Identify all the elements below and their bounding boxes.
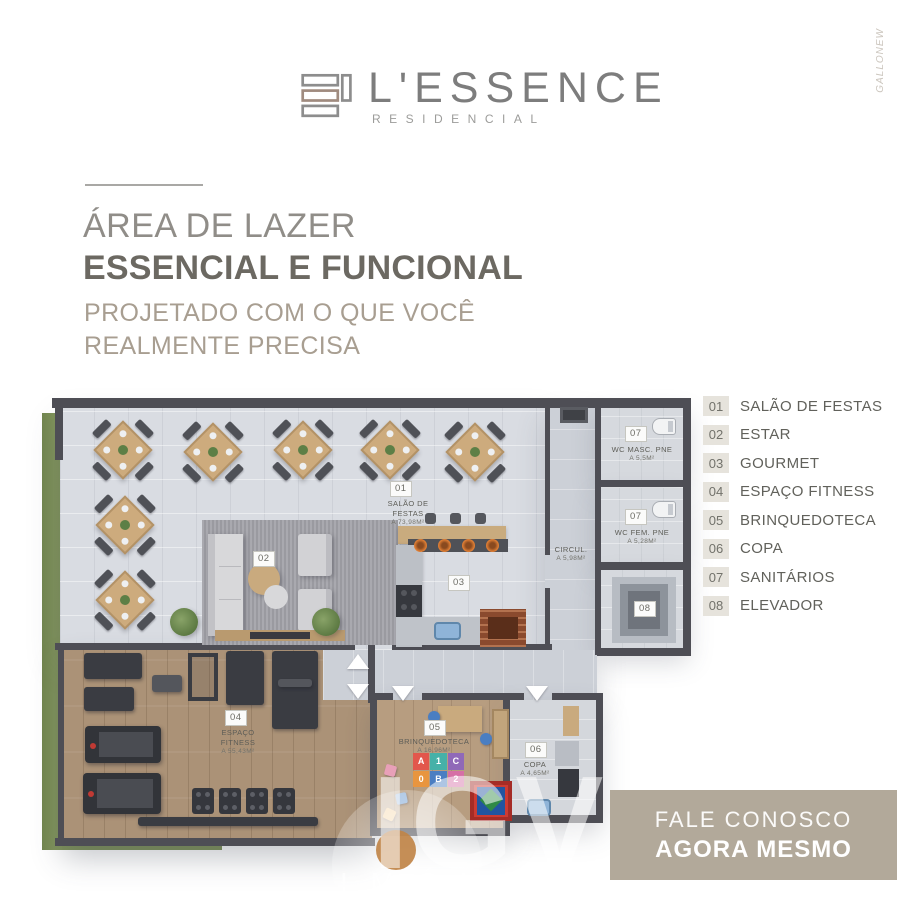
legend: 01 SALÃO DE FESTAS 02 ESTAR 03 GOURMET 0… [703, 396, 882, 616]
legend-label: ESPAÇO FITNESS [740, 483, 875, 500]
side-table [264, 585, 288, 609]
room-badge-fitness: 04 [225, 710, 247, 726]
food-plate [414, 539, 427, 552]
food-plate [486, 539, 499, 552]
legend-label: BRINQUEDOTECA [740, 512, 876, 529]
legend-label: GOURMET [740, 455, 819, 472]
room-badge-brinquedoteca: 05 [424, 720, 446, 736]
legend-num: 02 [703, 425, 729, 445]
treadmill [85, 726, 161, 763]
brand-logo-icon [300, 70, 354, 122]
food-plate [438, 539, 451, 552]
flow-arrow-down [347, 684, 369, 699]
toilet [652, 418, 676, 435]
legend-num: 01 [703, 396, 729, 416]
room-wc-masc [597, 405, 688, 483]
room-badge-wc-masc: 07 [625, 426, 647, 442]
brand-subtitle: RESIDENCIAL [368, 112, 669, 126]
legend-item-gourmet: 03 GOURMET [703, 453, 882, 473]
copa-cabinet [563, 706, 579, 736]
room-badge-estar: 02 [253, 551, 275, 567]
multi-gym-station [272, 651, 318, 729]
legend-label: ESTAR [740, 426, 791, 443]
headline-line2: ESSENCIAL E FUNCIONAL [83, 249, 523, 288]
dumbbell-rack [219, 788, 241, 814]
legend-item-elevador: 08 ELEVADOR [703, 596, 882, 616]
gym-machine [84, 687, 134, 711]
dumbbell-rack [273, 788, 295, 814]
plant [170, 608, 198, 636]
legend-label: ELEVADOR [740, 597, 824, 614]
floor-plan: A 1 C 0 B 2 01 SALÃO DE FESTAS A 73,98m²… [40, 393, 695, 855]
cta-line1: FALE CONOSCO [655, 807, 853, 833]
headline-sub-line1: PROJETADO COM O QUE VOCÊ [84, 297, 475, 330]
entry-door-mat [560, 407, 588, 423]
flyer-page: L'ESSENCE RESIDENCIAL GALLONEW ÁREA DE L… [0, 0, 900, 900]
room-label-wc-fem: WC FEM. PNE A 5,28m² [602, 528, 682, 547]
cta-contact-box[interactable]: FALE CONOSCO AGORA MESMO [610, 790, 897, 880]
legend-num: 04 [703, 482, 729, 502]
plant [312, 608, 340, 636]
legend-label: SALÃO DE FESTAS [740, 398, 882, 415]
armchair [298, 534, 332, 576]
legend-num: 06 [703, 539, 729, 559]
bar-stool [475, 513, 486, 524]
artist-watermark: GALLONEW [875, 28, 886, 93]
headline-sub-line2: REALMENTE PRECISA [84, 330, 475, 363]
legend-item-salao: 01 SALÃO DE FESTAS [703, 396, 882, 416]
igv-watermark-letters: IGV [372, 773, 605, 873]
dumbbell-rack [192, 788, 214, 814]
legend-label: COPA [740, 540, 783, 557]
headline-subtitle: PROJETADO COM O QUE VOCÊ REALMENTE PRECI… [84, 297, 475, 363]
room-wc-fem [597, 488, 688, 566]
room-label-wc-masc: WC MASC. PNE A 5,5m² [602, 445, 682, 464]
legend-item-fitness: 04 ESPAÇO FITNESS [703, 482, 882, 502]
gym-machine [84, 653, 142, 679]
igv-watermark-word: IMÓVEIS [340, 867, 618, 899]
multi-gym-bar [278, 679, 312, 687]
room-label-circulacao: CIRCUL. A 5,98m² [544, 545, 598, 564]
stove [396, 585, 422, 617]
brand-header: L'ESSENCE RESIDENCIAL [300, 66, 669, 126]
room-badge-salao: 01 [390, 481, 412, 497]
gym-machine [226, 651, 264, 705]
bar-stool [450, 513, 461, 524]
toilet [652, 501, 676, 518]
pizza-oven [480, 609, 526, 647]
legend-label: SANITÁRIOS [740, 569, 835, 586]
sink [434, 622, 461, 640]
flow-arrow-up [347, 654, 369, 669]
legend-item-brinquedoteca: 05 BRINQUEDOTECA [703, 510, 882, 530]
flow-arrow-down [526, 686, 548, 701]
room-label-fitness: ESPAÇO FITNESS A 55,43m² [208, 728, 268, 757]
legend-num: 07 [703, 567, 729, 587]
flow-arrow-down [392, 686, 414, 701]
legend-item-copa: 06 COPA [703, 539, 882, 559]
sofa [208, 534, 243, 636]
room-badge-elevador: 08 [634, 601, 656, 617]
weight-shelf [138, 817, 318, 826]
legend-num: 08 [703, 596, 729, 616]
room-badge-wc-fem: 07 [625, 509, 647, 525]
brand-name: L'ESSENCE [368, 66, 669, 110]
legend-num: 03 [703, 453, 729, 473]
legend-item-sanitarios: 07 SANITÁRIOS [703, 567, 882, 587]
gym-bench [152, 675, 182, 692]
room-badge-gourmet: 03 [448, 575, 470, 591]
headline-rule [85, 184, 203, 186]
legend-num: 05 [703, 510, 729, 530]
legend-item-estar: 02 ESTAR [703, 425, 882, 445]
room-label-salao: SALÃO DE FESTAS A 73,98m² [378, 499, 438, 528]
treadmill [83, 773, 161, 814]
squat-rack [188, 653, 218, 701]
dumbbell-rack [246, 788, 268, 814]
food-plate [462, 539, 475, 552]
cta-line2: AGORA MESMO [655, 836, 852, 864]
headline-line1: ÁREA DE LAZER [83, 207, 356, 246]
